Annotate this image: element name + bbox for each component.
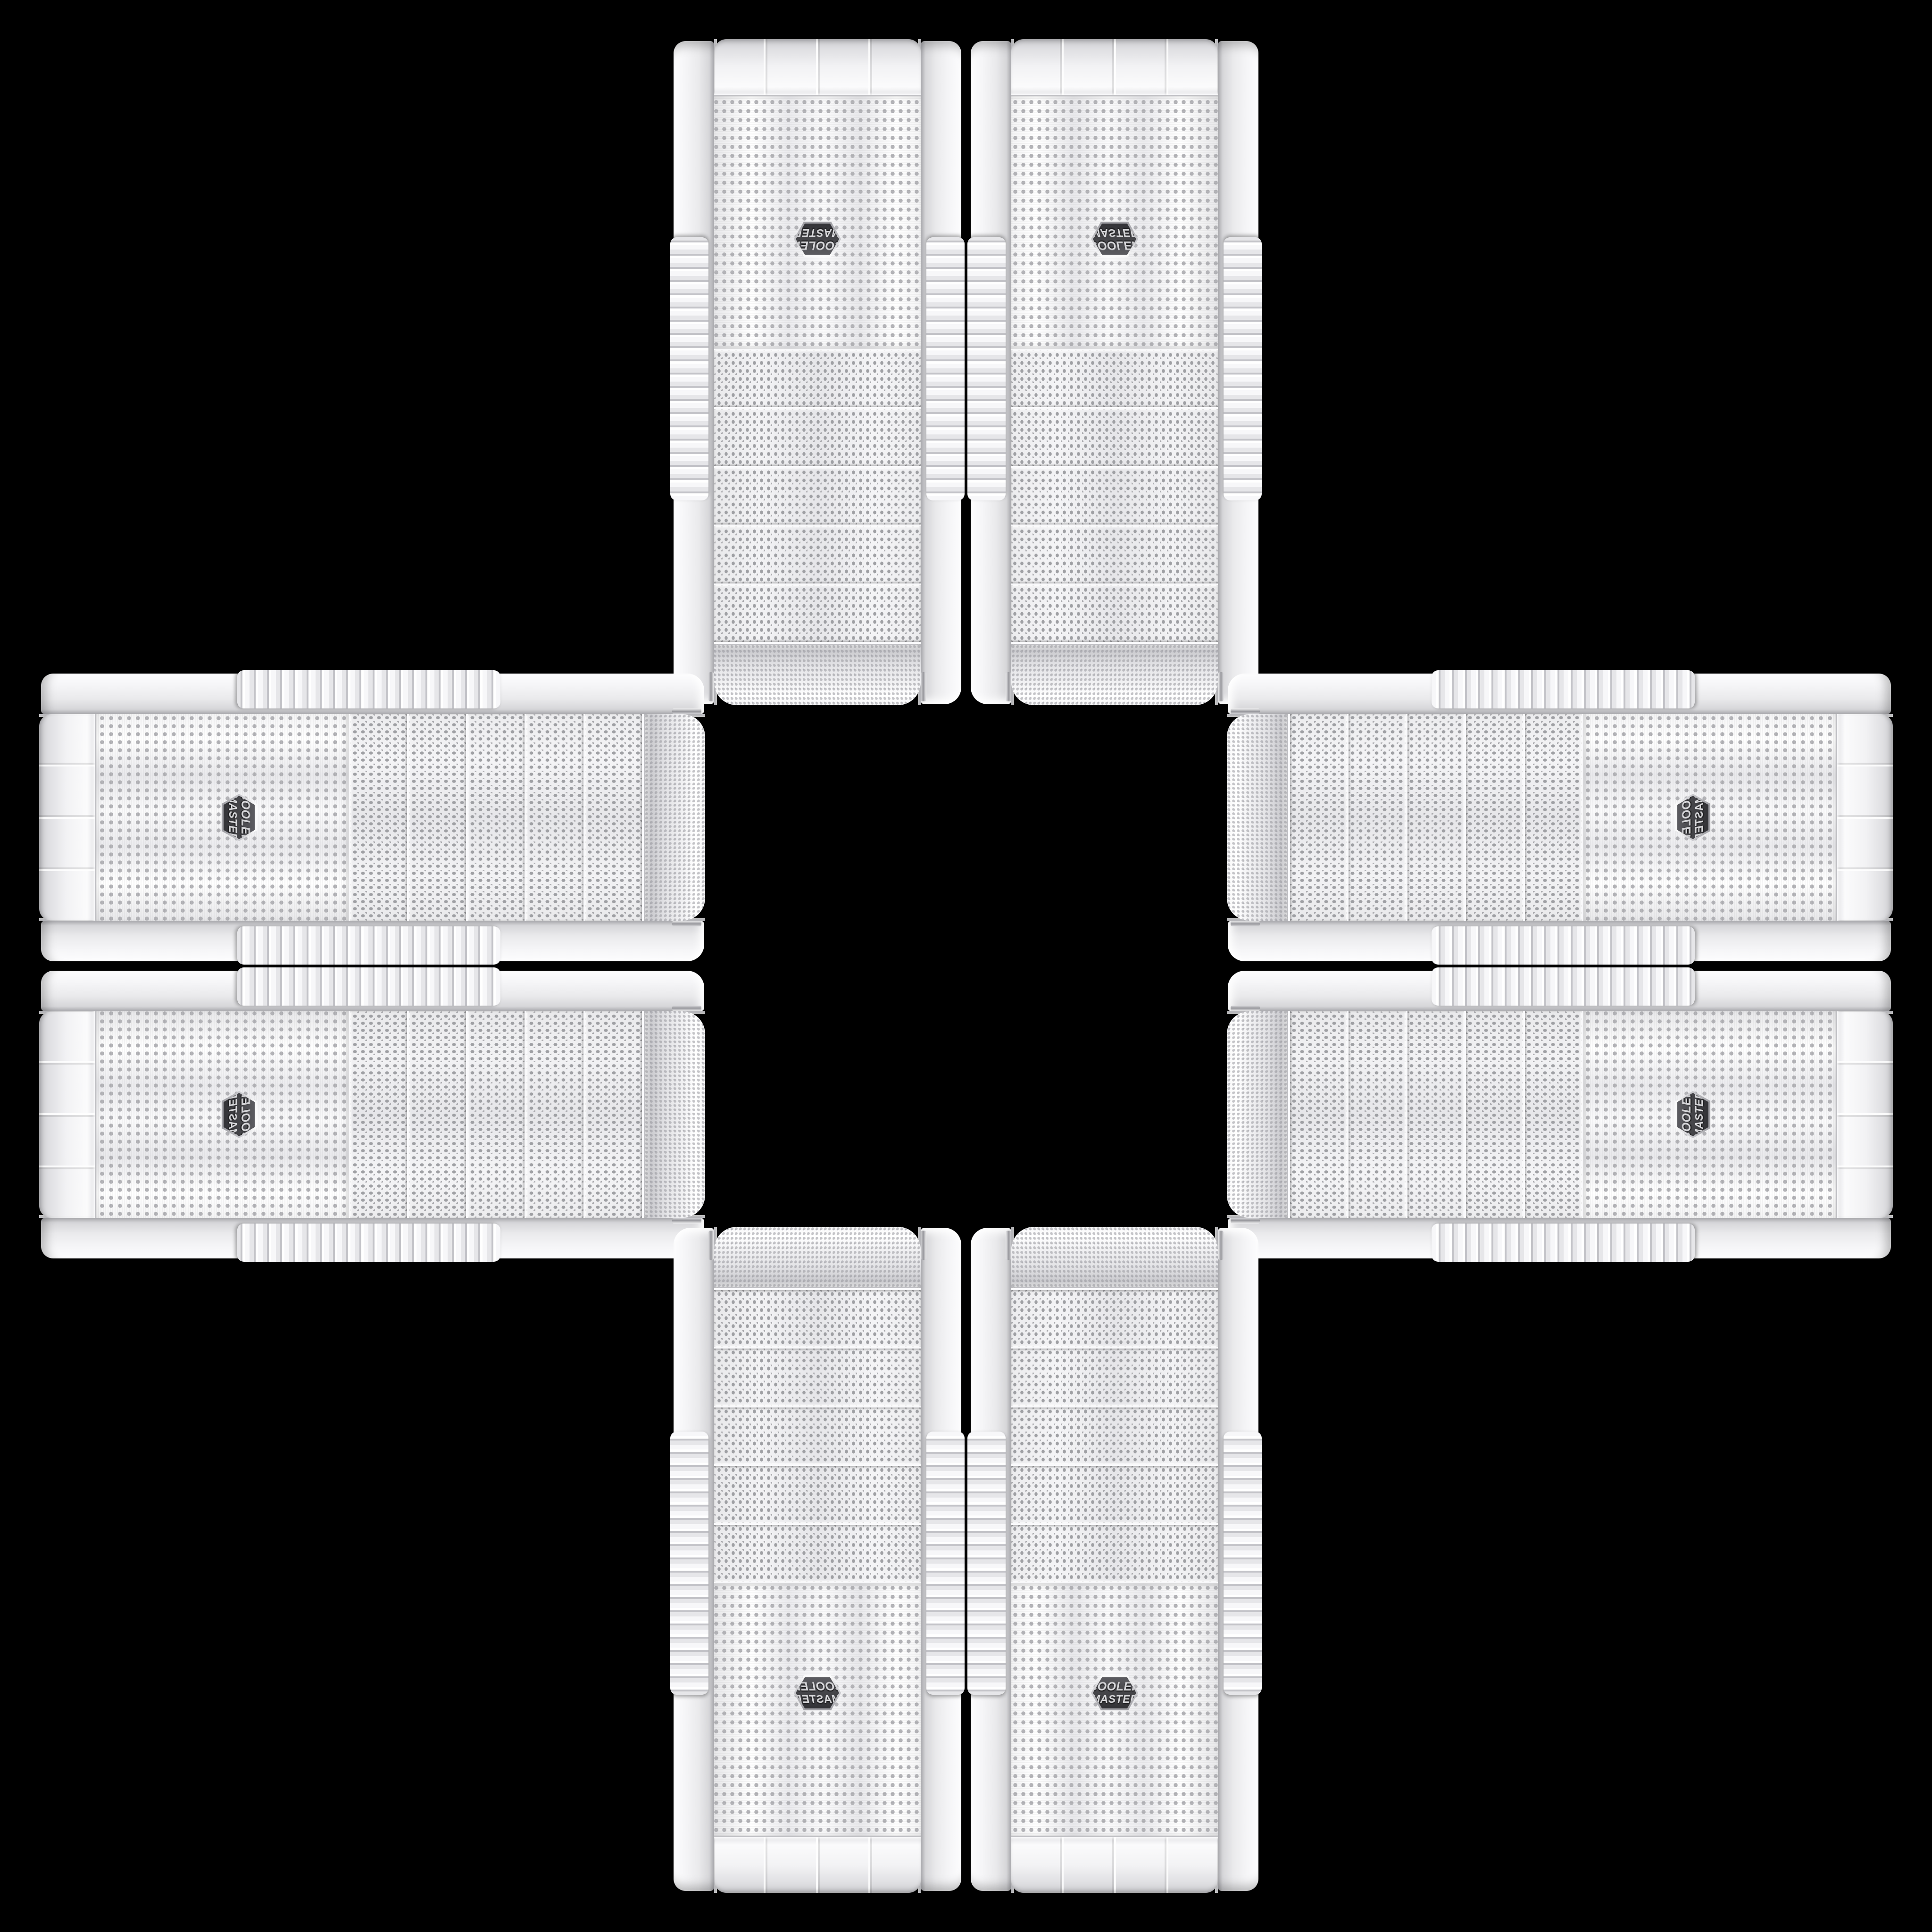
front-mesh-panel: COOLER MASTER [96, 714, 349, 921]
cooler-master-badge-face: COOLER MASTER [224, 796, 255, 839]
sculpted-bottom-cap [714, 1836, 921, 1893]
cooler-master-badge: COOLER MASTER [222, 794, 257, 841]
cooler-master-badge: COOLER MASTER [1675, 1091, 1710, 1138]
chrome-trim-left [1006, 672, 1011, 701]
rail-grip-ribs [237, 670, 500, 708]
chrome-trim-left [1231, 708, 1260, 714]
chrome-trim-right [708, 672, 714, 701]
tower-top-left: COOLER MASTER [674, 36, 961, 709]
front-mesh-panel: COOLER MASTER [1583, 1011, 1836, 1218]
badge-text-line1: COOLER [1681, 791, 1693, 843]
drive-bay-stack [1011, 1288, 1218, 1583]
sculpted-bottom-cap [39, 714, 96, 921]
drive-bay-cover [585, 1011, 642, 1218]
drive-bay-cover [714, 350, 921, 407]
drive-bay-cover [714, 1407, 921, 1464]
drive-bay-cover [1349, 714, 1405, 921]
rail-grip-ribs [926, 237, 965, 500]
chrome-trim-left [672, 708, 701, 714]
badge-text-line1: COOLER [1089, 239, 1141, 251]
rail-grip-ribs [1432, 670, 1695, 708]
rail-grip-ribs [237, 926, 500, 965]
case-side-rail-left [41, 1218, 704, 1258]
drive-bay-cover [468, 714, 525, 921]
drive-bay-cover [1011, 409, 1218, 466]
front-mesh-panel: COOLER MASTER [1011, 96, 1218, 349]
drive-bay-cover [1011, 1407, 1218, 1464]
chrome-trim-right [1218, 1231, 1224, 1260]
mesh-top-edge [714, 1227, 921, 1288]
pc-case-front-panel: COOLER MASTER [674, 1223, 961, 1896]
case-right-bottom: COOLER MASTER [1223, 971, 1896, 1258]
badge-text-line2: MASTER [227, 1091, 239, 1138]
drive-bay-cover [526, 714, 583, 921]
sculpted-bottom-cap [1011, 1836, 1218, 1893]
badge-text-line1: COOLER [239, 791, 251, 843]
chrome-trim-right [672, 1006, 701, 1011]
drive-bay-cover [409, 1011, 466, 1218]
front-bezel: COOLER MASTER [714, 1227, 921, 1893]
pc-case-front-panel: COOLER MASTER [1223, 971, 1896, 1258]
badge-text-line2: MASTER [1693, 1091, 1705, 1138]
case-right-top: COOLER MASTER [1223, 674, 1896, 961]
tower-bottom-left: COOLER MASTER [674, 1223, 961, 1896]
drive-bay-cover [1466, 714, 1523, 921]
badge-text-line1: COOLER [1681, 1089, 1693, 1141]
mesh-top-edge [644, 714, 705, 921]
cooler-master-badge-face: COOLER MASTER [796, 1677, 839, 1708]
drive-bay-cover [468, 1011, 525, 1218]
badge-text-line2: MASTER [794, 227, 841, 239]
rail-grip-ribs [1224, 1432, 1262, 1695]
pc-case-front-panel: COOLER MASTER [36, 971, 709, 1258]
mesh-top-edge [1011, 644, 1218, 705]
front-mesh-panel: COOLER MASTER [1583, 714, 1836, 921]
front-bezel: COOLER MASTER [1227, 1011, 1893, 1218]
case-side-rail-right [1218, 41, 1258, 704]
drive-bay-cover [714, 585, 921, 642]
drive-bay-stack [714, 349, 921, 644]
drive-bay-cover [526, 1011, 583, 1218]
rail-grip-ribs [926, 1432, 965, 1695]
composition: COOLER MASTER [0, 0, 1932, 1932]
front-bezel: COOLER MASTER [1011, 39, 1218, 705]
mesh-top-edge [1011, 1227, 1218, 1288]
case-left-top: COOLER MASTER [36, 674, 709, 961]
case-side-rail-right [1218, 1228, 1258, 1891]
rail-grip-ribs [967, 237, 1006, 500]
front-bezel: COOLER MASTER [39, 714, 705, 921]
sculpted-bottom-cap [1836, 1011, 1893, 1218]
case-side-rail-left [921, 1228, 961, 1891]
badge-text-line1: COOLER [239, 1089, 251, 1141]
front-mesh-panel: COOLER MASTER [714, 96, 921, 349]
pc-case-front-panel: COOLER MASTER [674, 36, 961, 709]
drive-bay-cover [1011, 1290, 1218, 1347]
drive-bay-cover [1525, 714, 1582, 921]
cooler-master-badge-face: COOLER MASTER [1677, 796, 1708, 839]
rail-grip-ribs [670, 1432, 708, 1695]
sculpted-bottom-cap [39, 1011, 96, 1218]
front-mesh-panel: COOLER MASTER [714, 1583, 921, 1836]
case-side-rail-left [41, 674, 704, 714]
case-side-rail-right [674, 41, 714, 704]
chrome-trim-left [1006, 1231, 1011, 1260]
rail-grip-ribs [1432, 967, 1695, 1006]
badge-text-line2: MASTER [227, 794, 239, 841]
drive-bay-cover [1011, 468, 1218, 525]
drive-bay-cover [1290, 1011, 1347, 1218]
cooler-master-badge: COOLER MASTER [794, 1675, 841, 1710]
front-bezel: COOLER MASTER [1227, 714, 1893, 921]
drive-bay-stack [714, 1288, 921, 1583]
cooler-master-badge-face: COOLER MASTER [796, 224, 839, 255]
drive-bay-cover [1011, 526, 1218, 583]
badge-text-line1: COOLER [791, 239, 843, 251]
rail-grip-ribs [1224, 237, 1262, 500]
mesh-top-edge [1227, 714, 1288, 921]
mesh-top-edge [714, 644, 921, 705]
badge-text-line1: COOLER [791, 1681, 843, 1693]
badge-text-line1: COOLER [1089, 1681, 1141, 1693]
pc-case-front-panel: COOLER MASTER [1223, 674, 1896, 961]
chrome-trim-left [921, 1231, 926, 1260]
case-side-rail-right [1228, 971, 1891, 1011]
drive-bay-stack [349, 1011, 644, 1218]
cooler-master-badge-face: COOLER MASTER [224, 1093, 255, 1136]
case-side-rail-left [921, 41, 961, 704]
drive-bay-cover [1407, 714, 1464, 921]
drive-bay-cover [1407, 1011, 1464, 1218]
case-side-rail-right [674, 1228, 714, 1891]
case-side-rail-left [971, 41, 1011, 704]
sculpted-bottom-cap [1836, 714, 1893, 921]
drive-bay-cover [1011, 1466, 1218, 1523]
drive-bay-cover [714, 468, 921, 525]
drive-bay-cover [1466, 1011, 1523, 1218]
drive-bay-stack [1011, 349, 1218, 644]
chrome-trim-left [921, 672, 926, 701]
mesh-top-edge [1227, 1011, 1288, 1218]
drive-bay-cover [1349, 1011, 1405, 1218]
chrome-trim-right [1231, 921, 1260, 926]
chrome-trim-right [708, 1231, 714, 1260]
drive-bay-cover [714, 1349, 921, 1405]
drive-bay-cover [1011, 585, 1218, 642]
front-bezel: COOLER MASTER [1011, 1227, 1218, 1893]
chrome-trim-right [1231, 1006, 1260, 1011]
case-side-rail-left [1228, 1218, 1891, 1258]
drive-bay-cover [1011, 1349, 1218, 1405]
cooler-master-badge: COOLER MASTER [1091, 222, 1138, 257]
drive-bay-stack [1288, 1011, 1583, 1218]
drive-bay-cover [714, 409, 921, 466]
badge-text-line2: MASTER [1091, 1693, 1138, 1705]
cooler-master-badge-face: COOLER MASTER [1677, 1093, 1708, 1136]
pc-case-front-panel: COOLER MASTER [36, 674, 709, 961]
rail-grip-ribs [967, 1432, 1006, 1695]
tower-top-right: COOLER MASTER [971, 36, 1258, 709]
drive-bay-cover [585, 714, 642, 921]
badge-text-line2: MASTER [794, 1693, 841, 1705]
pc-case-front-panel: COOLER MASTER [971, 1223, 1258, 1896]
cooler-master-badge: COOLER MASTER [1675, 794, 1710, 841]
drive-bay-cover [714, 526, 921, 583]
rail-grip-ribs [237, 967, 500, 1006]
cooler-master-badge: COOLER MASTER [794, 222, 841, 257]
front-bezel: COOLER MASTER [714, 39, 921, 705]
rail-grip-ribs [1432, 1224, 1695, 1262]
cooler-master-badge-face: COOLER MASTER [1093, 224, 1136, 255]
case-side-rail-left [971, 1228, 1011, 1891]
cooler-master-badge-face: COOLER MASTER [1093, 1677, 1136, 1708]
front-mesh-panel: COOLER MASTER [96, 1011, 349, 1218]
drive-bay-cover [409, 714, 466, 921]
cooler-master-badge: COOLER MASTER [1091, 1675, 1138, 1710]
tower-bottom-right: COOLER MASTER [971, 1223, 1258, 1896]
cooler-master-badge: COOLER MASTER [222, 1091, 257, 1138]
drive-bay-cover [714, 1466, 921, 1523]
rail-grip-ribs [1432, 926, 1695, 965]
drive-bay-cover [1011, 1525, 1218, 1582]
drive-bay-stack [349, 714, 644, 921]
drive-bay-cover [1525, 1011, 1582, 1218]
pc-case-front-panel: COOLER MASTER [971, 36, 1258, 709]
sculpted-bottom-cap [1011, 39, 1218, 96]
case-side-rail-left [1228, 674, 1891, 714]
drive-bay-cover [714, 1290, 921, 1347]
rail-grip-ribs [670, 237, 708, 500]
drive-bay-cover [350, 1011, 407, 1218]
case-side-rail-right [1228, 921, 1891, 961]
case-side-rail-right [41, 971, 704, 1011]
drive-bay-stack [1288, 714, 1583, 921]
front-bezel: COOLER MASTER [39, 1011, 705, 1218]
drive-bay-cover [1011, 350, 1218, 407]
front-mesh-panel: COOLER MASTER [1011, 1583, 1218, 1836]
rail-grip-ribs [237, 1224, 500, 1262]
mesh-top-edge [644, 1011, 705, 1218]
drive-bay-cover [714, 1525, 921, 1582]
drive-bay-cover [1290, 714, 1347, 921]
case-left-bottom: COOLER MASTER [36, 971, 709, 1258]
sculpted-bottom-cap [714, 39, 921, 96]
badge-text-line2: MASTER [1091, 227, 1138, 239]
case-side-rail-right [41, 921, 704, 961]
badge-text-line2: MASTER [1693, 794, 1705, 841]
drive-bay-cover [350, 714, 407, 921]
chrome-trim-right [672, 921, 701, 926]
